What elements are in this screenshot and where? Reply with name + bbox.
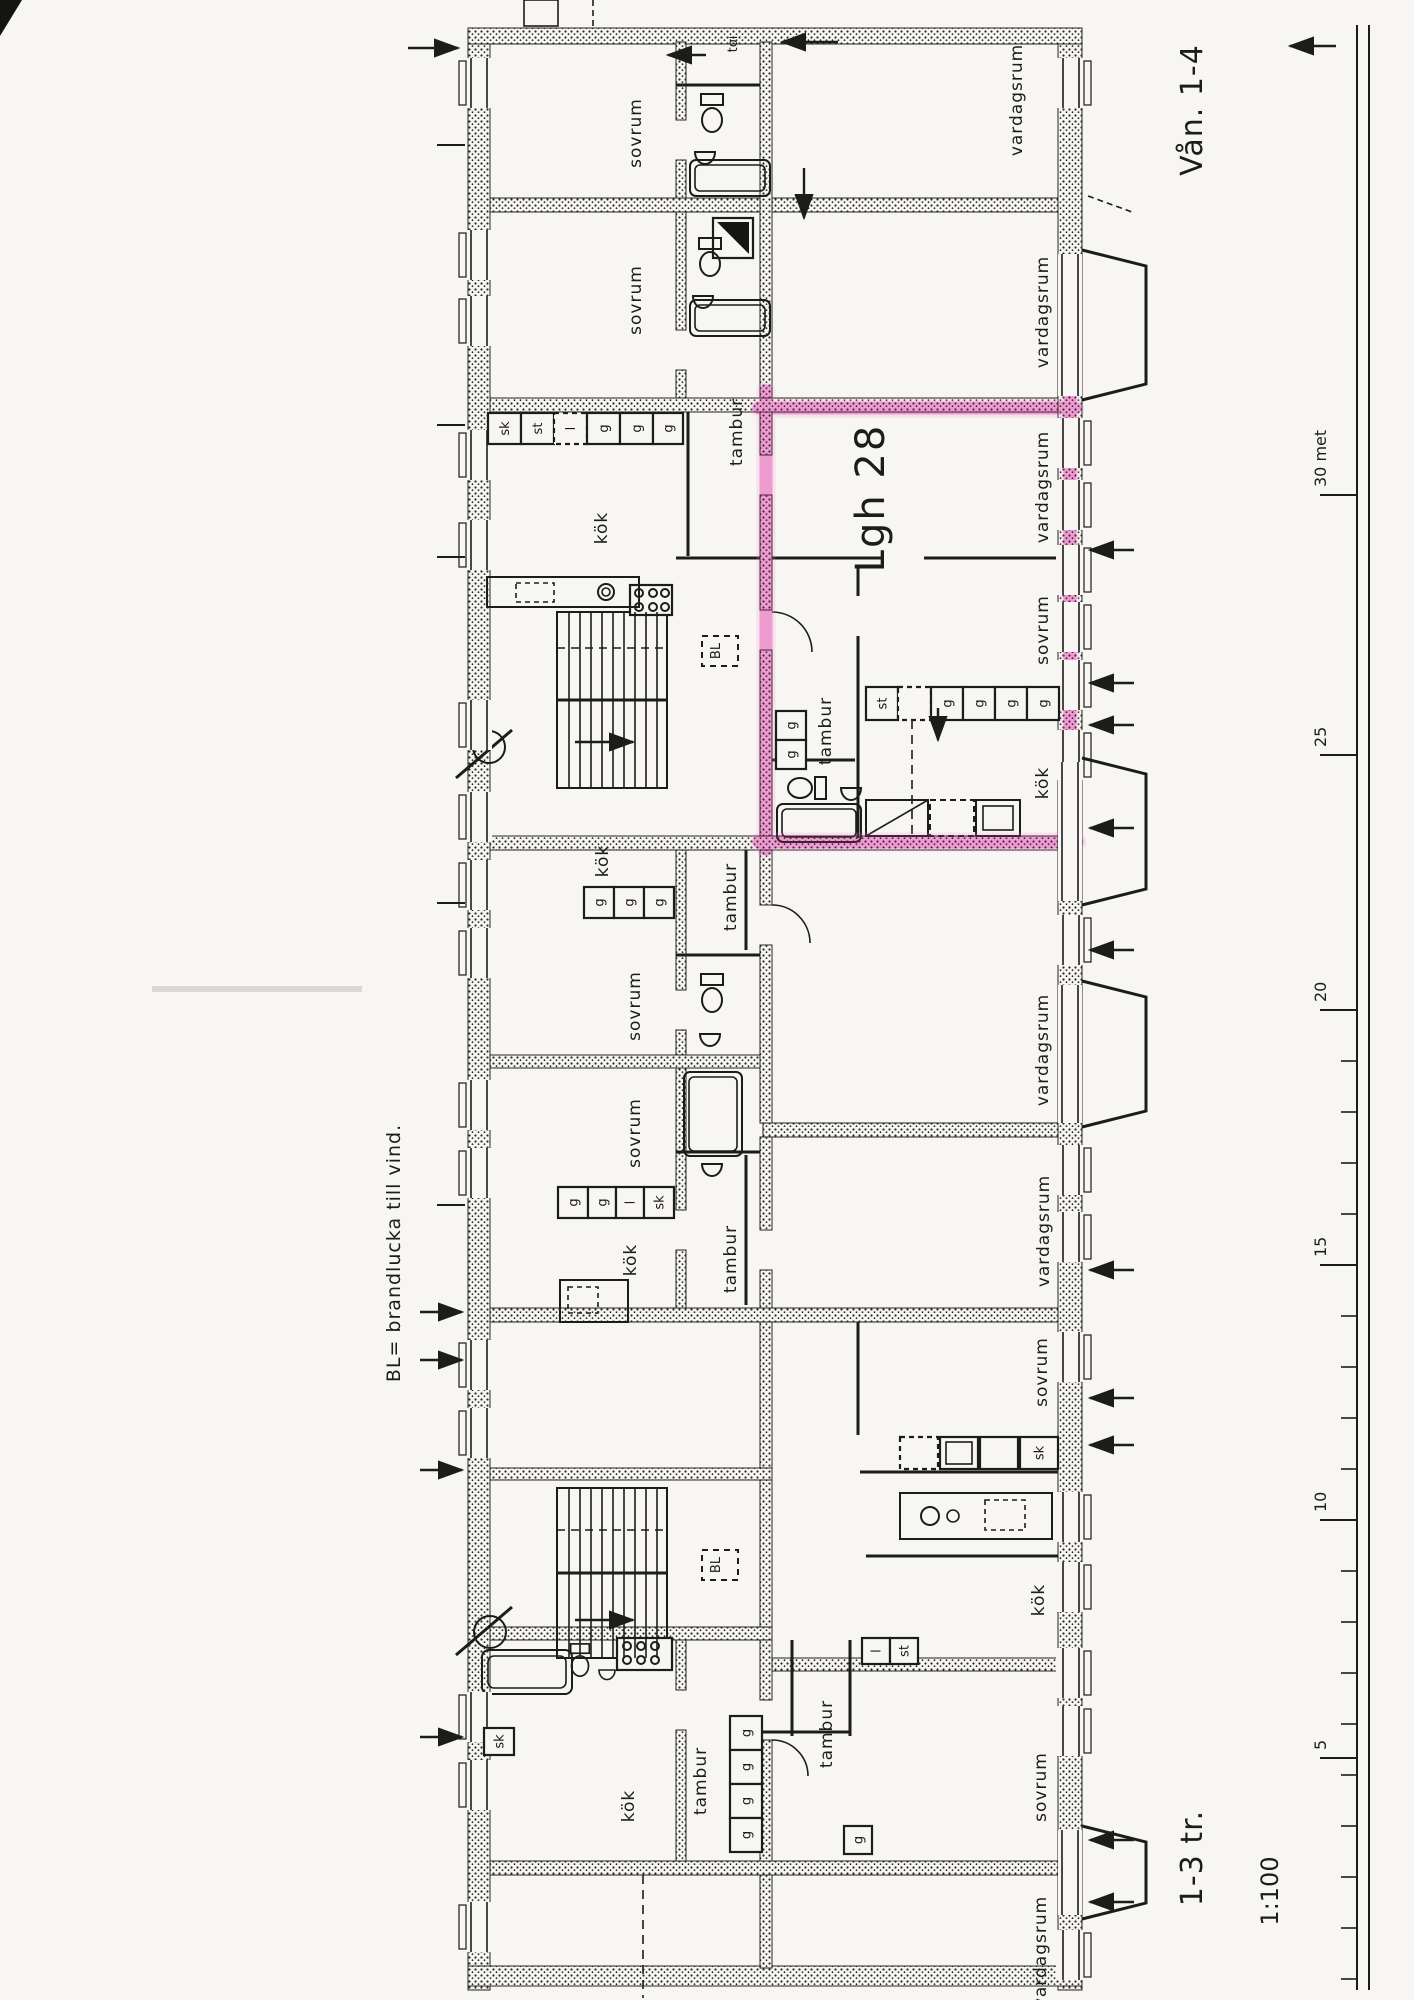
wardrobe-label: g bbox=[662, 424, 677, 432]
window bbox=[1056, 1706, 1084, 1756]
stairs-title: 1-3 tr. bbox=[1175, 1810, 1210, 1906]
window bbox=[1056, 1930, 1084, 1980]
room-label-living: vardagsrum bbox=[1007, 44, 1027, 156]
wardrobe-label: g bbox=[630, 424, 645, 432]
toilet-icon bbox=[701, 974, 723, 1012]
wardrobe-label: g bbox=[941, 699, 956, 707]
room-label-hall: tambur bbox=[721, 1225, 741, 1293]
room-label-kitchen: kök bbox=[619, 1790, 639, 1822]
cupboard-label: sk bbox=[1033, 1445, 1048, 1460]
kitchen-counter bbox=[900, 1493, 1052, 1539]
fire-hatch-label: BL bbox=[709, 642, 724, 659]
window bbox=[466, 700, 492, 750]
bathtub-icon bbox=[690, 300, 770, 336]
facade-walls bbox=[468, 28, 1082, 1990]
wardrobe-label: g bbox=[567, 1198, 582, 1206]
bathtub-icon bbox=[684, 1072, 742, 1156]
window bbox=[1056, 1562, 1084, 1612]
kitchen-counter bbox=[487, 577, 639, 607]
linen-label: l bbox=[870, 1649, 885, 1653]
wardrobe-label: g bbox=[973, 699, 988, 707]
room-label-toilet: toi bbox=[726, 36, 741, 53]
window bbox=[1056, 418, 1084, 468]
linen-label: l bbox=[564, 427, 579, 431]
room-label-bedroom: sovrum bbox=[625, 971, 645, 1041]
cupboard-label: sk bbox=[653, 1195, 668, 1210]
room-label-bedroom: sovrum bbox=[626, 98, 646, 168]
vent-dot-box-upper bbox=[630, 585, 672, 615]
wardrobe-label: g bbox=[1037, 699, 1052, 707]
window bbox=[466, 792, 492, 842]
wardrobe-label: g bbox=[597, 424, 612, 432]
room-label-hall: tambur bbox=[816, 697, 836, 765]
floors-title: Vån. 1-4 bbox=[1175, 44, 1210, 176]
cupboard-label: sk bbox=[493, 1734, 508, 1749]
room-label-living: vardagsrum bbox=[1033, 994, 1053, 1106]
door-arcs bbox=[772, 612, 812, 1776]
ruler-label-15: 15 bbox=[1311, 1237, 1330, 1257]
kitchen-counter bbox=[866, 800, 1020, 836]
stove-icon bbox=[940, 1437, 978, 1469]
scan-corner-mark bbox=[0, 0, 22, 36]
legend-fire-hatch: BL= brandlucka till vind. bbox=[383, 1124, 405, 1382]
closet-box bbox=[980, 1437, 1018, 1469]
room-label-hall: tambur bbox=[817, 1700, 837, 1768]
room-label-kitchen: kök bbox=[621, 1244, 641, 1276]
wardrobe-label: g bbox=[852, 1836, 867, 1844]
window bbox=[1056, 660, 1084, 710]
window bbox=[1056, 1492, 1084, 1542]
room-label-kitchen: kök bbox=[592, 512, 612, 544]
wardrobe-label: g bbox=[785, 721, 800, 729]
window bbox=[1056, 1145, 1084, 1195]
cleaning-label: st bbox=[876, 698, 891, 710]
wardrobe-label: g bbox=[593, 898, 608, 906]
window bbox=[466, 928, 492, 978]
wardrobe-label: g bbox=[785, 750, 800, 758]
window bbox=[466, 1080, 492, 1130]
room-label-bedroom: sovrum bbox=[625, 1098, 645, 1168]
floor-plan-drawing: 30 met 25 20 15 10 5 sovrum sovrum sovru… bbox=[0, 0, 1414, 2000]
ruler-label-5: 5 bbox=[1311, 1740, 1330, 1750]
room-label-bedroom: sovrum bbox=[1031, 1752, 1051, 1822]
wardrobe-label: g bbox=[653, 898, 668, 906]
sink-icon bbox=[695, 152, 715, 164]
ruler-label-20: 20 bbox=[1311, 982, 1330, 1002]
room-label-hall: tambur bbox=[691, 1747, 711, 1815]
window bbox=[1056, 1332, 1084, 1382]
room-label-kitchen: kök bbox=[1033, 767, 1053, 799]
room-label-kitchen: kök bbox=[1029, 1584, 1049, 1616]
bathtub-icon bbox=[690, 160, 770, 196]
window bbox=[466, 58, 492, 108]
toilet-icon bbox=[788, 777, 826, 799]
room-label-bedroom: sovrum bbox=[1032, 1337, 1052, 1407]
bay-window-outline bbox=[1082, 250, 1146, 400]
scale-value: 1:100 bbox=[1256, 1856, 1284, 1925]
wardrobe-label: g bbox=[740, 1797, 755, 1805]
wardrobe-label: g bbox=[596, 1198, 611, 1206]
window bbox=[466, 1760, 492, 1810]
wardrobe-label: g bbox=[623, 898, 638, 906]
window bbox=[466, 230, 492, 280]
scale-ruler: 30 met 25 20 15 10 5 bbox=[1311, 25, 1369, 1990]
bay-window-outline bbox=[1082, 981, 1146, 1127]
room-labels: sovrum sovrum sovrum sovrum sovrum sovru… bbox=[592, 36, 1054, 2000]
room-label-bedroom: sovrum bbox=[1033, 595, 1053, 665]
vent-dot-box-lower bbox=[617, 1638, 672, 1670]
closet-box bbox=[898, 687, 931, 720]
room-label-living: vardagsrum bbox=[1033, 256, 1053, 368]
window bbox=[1056, 1212, 1084, 1262]
window bbox=[466, 1902, 492, 1952]
window bbox=[466, 520, 492, 570]
window bbox=[466, 1408, 492, 1458]
closet-box bbox=[900, 1437, 938, 1469]
ruler-label-10: 10 bbox=[1311, 1492, 1330, 1512]
room-label-kitchen: kök bbox=[593, 845, 613, 877]
wardrobe-label: g bbox=[740, 1763, 755, 1771]
window bbox=[466, 1340, 492, 1390]
cupboard-label: sk bbox=[498, 421, 513, 436]
window bbox=[1056, 1648, 1084, 1698]
stairwell-upper bbox=[557, 612, 667, 788]
window bbox=[466, 1148, 492, 1198]
window bbox=[466, 860, 492, 910]
room-label-living: vardagsrum bbox=[1031, 1896, 1051, 2000]
linen-label: l bbox=[624, 1201, 639, 1205]
apartment-number-label: Lgh 28 bbox=[848, 424, 894, 573]
window bbox=[1056, 58, 1084, 108]
room-label-hall: tambur bbox=[727, 398, 747, 466]
wardrobe-label: g bbox=[740, 1729, 755, 1737]
wardrobe-label: g bbox=[1005, 699, 1020, 707]
room-label-hall: tambur bbox=[721, 863, 741, 931]
window bbox=[1056, 602, 1084, 652]
cleaning-label: st bbox=[531, 423, 546, 435]
room-label-living: vardagsrum bbox=[1034, 1175, 1054, 1287]
fire-hatch-label: BL bbox=[709, 1556, 724, 1573]
sink-icon bbox=[702, 1164, 722, 1176]
sink-icon bbox=[700, 1034, 720, 1046]
ruler-label-25: 25 bbox=[1311, 727, 1330, 747]
wardrobe-label: g bbox=[740, 1831, 755, 1839]
bay-window-outline bbox=[1082, 758, 1146, 905]
cleaning-label: st bbox=[898, 1645, 913, 1657]
window bbox=[466, 296, 492, 346]
window bbox=[1056, 915, 1084, 965]
scanned-floor-plan-page: 30 met 25 20 15 10 5 sovrum sovrum sovru… bbox=[0, 0, 1414, 2000]
sink-icon bbox=[599, 1670, 615, 1680]
ruler-label-30: 30 met bbox=[1311, 430, 1330, 487]
room-label-bedroom: sovrum bbox=[626, 265, 646, 335]
window bbox=[1056, 480, 1084, 530]
bathtub-icon bbox=[482, 1650, 572, 1694]
inner-longitudinal-wall bbox=[676, 42, 686, 1861]
window bbox=[1056, 545, 1084, 595]
room-label-living: vardagsrum bbox=[1033, 431, 1053, 543]
toilet-icon bbox=[701, 94, 723, 132]
